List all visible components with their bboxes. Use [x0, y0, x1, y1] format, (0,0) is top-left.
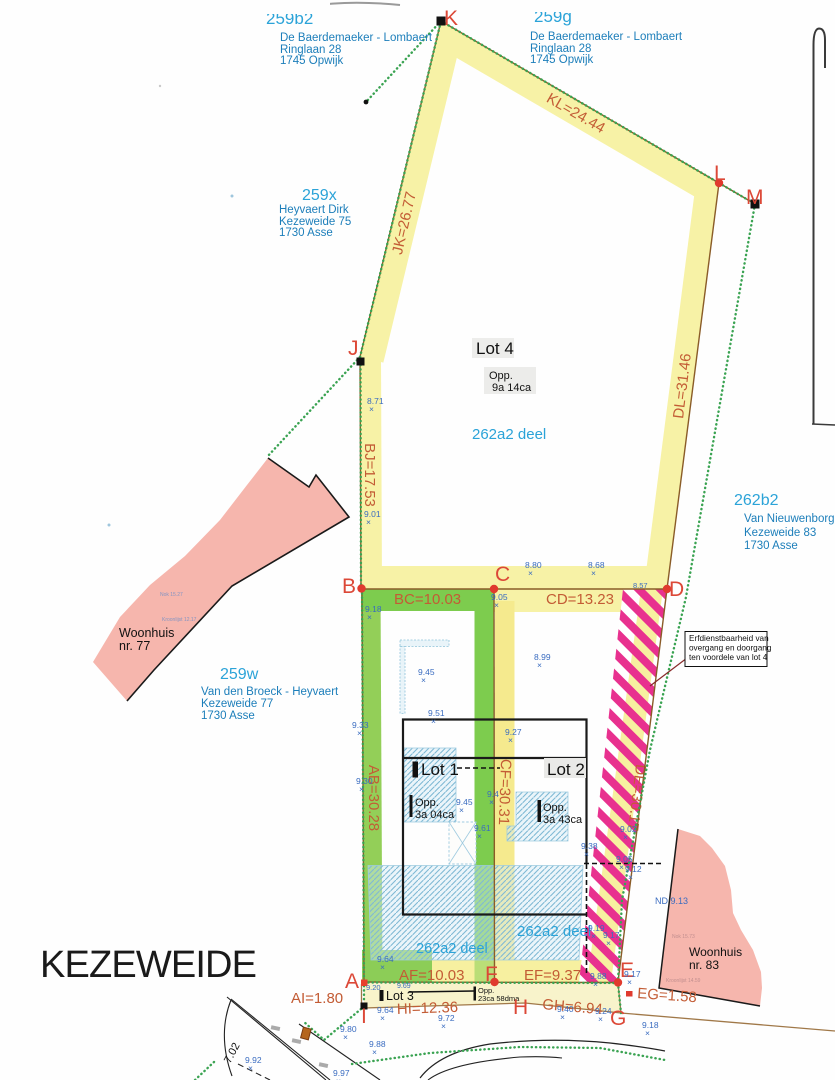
svg-text:F: F [485, 963, 498, 986]
svg-text:1745 Opwijk: 1745 Opwijk [280, 55, 344, 67]
svg-text:Woonhuis: Woonhuis [119, 626, 174, 640]
svg-text:Heyvaert Dirk: Heyvaert Dirk [279, 204, 349, 216]
svg-text:Van Nieuwenborgh: Van Nieuwenborgh [744, 513, 835, 525]
svg-text:×: × [343, 1032, 348, 1042]
svg-text:×: × [628, 872, 633, 882]
svg-text:259x: 259x [302, 187, 337, 204]
svg-text:Kroonlijst 12.17: Kroonlijst 12.17 [162, 617, 197, 623]
svg-text:1730 Asse: 1730 Asse [201, 710, 255, 722]
svg-text:9.69: 9.69 [397, 983, 411, 990]
svg-text:Erfdienstbaarheid van: Erfdienstbaarheid van [689, 634, 769, 643]
svg-text:×: × [494, 600, 499, 610]
svg-text:CD=13.23: CD=13.23 [546, 591, 614, 608]
svg-text:259w: 259w [220, 666, 259, 683]
svg-text:×: × [366, 517, 371, 527]
svg-text:ND 9.13: ND 9.13 [655, 896, 688, 906]
svg-text:×: × [359, 784, 364, 794]
svg-text:×: × [367, 612, 372, 622]
svg-text:L: L [714, 162, 726, 185]
svg-text:B: B [342, 575, 356, 598]
svg-text:ten voordele van lot 4: ten voordele van lot 4 [689, 653, 768, 662]
svg-text:Nok 15.27: Nok 15.27 [160, 592, 183, 598]
svg-text:×: × [336, 1076, 341, 1080]
svg-text:De Baerdemaeker - Lombaert: De Baerdemaeker - Lombaert [280, 32, 433, 44]
svg-text:×: × [560, 1012, 565, 1022]
svg-text:J: J [348, 337, 359, 360]
svg-text:×: × [372, 1047, 377, 1057]
svg-text:Kroonlijst 14.59: Kroonlijst 14.59 [666, 978, 701, 984]
svg-text:H: H [513, 996, 528, 1019]
svg-text:×: × [369, 404, 374, 414]
svg-text:262a2 deel: 262a2 deel [472, 426, 546, 443]
svg-text:K: K [444, 7, 458, 30]
svg-text:262a2 deel: 262a2 deel [517, 923, 591, 940]
svg-text:AB=30.28: AB=30.28 [365, 765, 382, 831]
svg-text:Lot 2: Lot 2 [547, 760, 585, 779]
svg-text:EF=9.37: EF=9.37 [524, 967, 581, 984]
svg-text:C: C [495, 563, 510, 586]
svg-text:×: × [591, 568, 596, 578]
svg-text:×: × [591, 931, 596, 941]
svg-text:262a2 deel: 262a2 deel [416, 941, 488, 957]
svg-text:nr. 83: nr. 83 [689, 958, 719, 972]
svg-text:Kezeweide 83: Kezeweide 83 [744, 527, 816, 539]
svg-text:BC=10.03: BC=10.03 [394, 591, 461, 608]
svg-text:1745 Opwijk: 1745 Opwijk [530, 54, 594, 66]
svg-text:1730 Asse: 1730 Asse [279, 227, 333, 239]
svg-text:×: × [645, 1028, 650, 1038]
svg-text:BJ=17.53: BJ=17.53 [361, 443, 378, 507]
svg-text:AF=10.03: AF=10.03 [399, 967, 464, 984]
svg-text:×: × [421, 675, 426, 685]
svg-text:overgang en doorgang: overgang en doorgang [689, 644, 772, 653]
svg-text:×: × [537, 660, 542, 670]
svg-text:De Baerdemaeker - Lombaert: De Baerdemaeker - Lombaert [530, 31, 683, 43]
svg-text:×: × [441, 1021, 446, 1031]
svg-text:×: × [380, 962, 385, 972]
svg-text:×: × [593, 979, 598, 989]
svg-text:D: D [669, 578, 684, 601]
svg-text:×: × [477, 831, 482, 841]
svg-text:3a 43ca: 3a 43ca [543, 814, 583, 826]
svg-text:3a 04ca: 3a 04ca [415, 809, 455, 821]
svg-text:M: M [746, 186, 764, 209]
svg-text:×: × [489, 797, 494, 807]
svg-text:×: × [606, 938, 611, 948]
svg-text:×: × [584, 849, 589, 859]
svg-text:×: × [431, 716, 436, 726]
svg-text:×: × [627, 977, 632, 987]
svg-text:KEZEWEIDE: KEZEWEIDE [40, 944, 257, 986]
svg-text:×: × [357, 728, 362, 738]
svg-text:Opp.: Opp. [415, 797, 439, 809]
svg-text:Opp.: Opp. [489, 370, 513, 382]
svg-text:1730 Asse: 1730 Asse [744, 540, 798, 552]
svg-text:Woonhuis: Woonhuis [689, 945, 742, 959]
svg-text:Nok 15.73: Nok 15.73 [672, 934, 695, 940]
svg-text:Lot 4: Lot 4 [476, 339, 514, 358]
svg-text:×: × [508, 735, 513, 745]
svg-text:9.20: 9.20 [366, 983, 381, 992]
svg-text:Lot 1: Lot 1 [421, 760, 459, 779]
svg-text:nr. 77: nr. 77 [119, 639, 150, 653]
svg-text:×: × [380, 1013, 385, 1023]
svg-text:262b2: 262b2 [734, 492, 779, 509]
svg-text:×: × [619, 862, 624, 872]
svg-text:Van den Broeck - Heyvaert: Van den Broeck - Heyvaert [201, 686, 339, 698]
svg-text:×: × [248, 1063, 253, 1073]
svg-text:Opp.: Opp. [543, 802, 567, 814]
svg-text:I: I [361, 1005, 367, 1028]
svg-text:A: A [345, 970, 359, 993]
svg-text:9a 14ca: 9a 14ca [492, 382, 532, 394]
svg-text:G: G [610, 1007, 626, 1030]
svg-text:×: × [598, 1014, 603, 1024]
svg-text:×: × [459, 805, 464, 815]
svg-text:×: × [623, 832, 628, 842]
svg-text:Kezeweide 77: Kezeweide 77 [201, 698, 273, 710]
svg-text:8.57: 8.57 [633, 581, 648, 590]
svg-text:×: × [528, 568, 533, 578]
svg-text:AI=1.80: AI=1.80 [291, 990, 343, 1007]
